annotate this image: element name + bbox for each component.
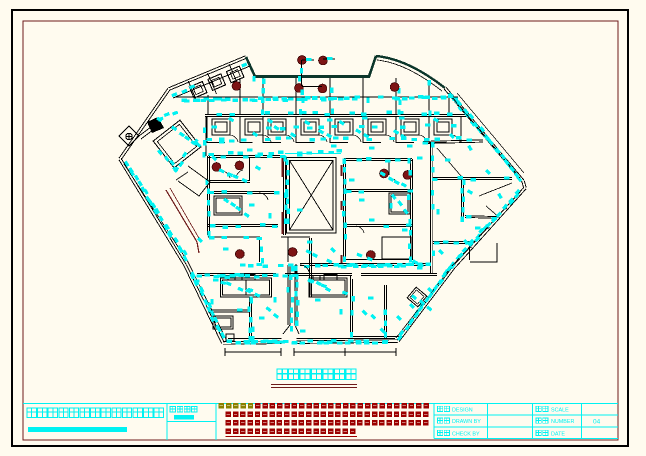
svg-text:DATE: DATE [551,431,565,437]
svg-text:SCALE: SCALE [551,408,569,414]
svg-text:CHECK BY: CHECK BY [452,431,480,437]
svg-text:04: 04 [593,419,601,426]
svg-text:DESIGN: DESIGN [452,408,473,414]
svg-text:DRAWN BY: DRAWN BY [452,419,481,425]
svg-text:NUMBER: NUMBER [551,419,574,425]
